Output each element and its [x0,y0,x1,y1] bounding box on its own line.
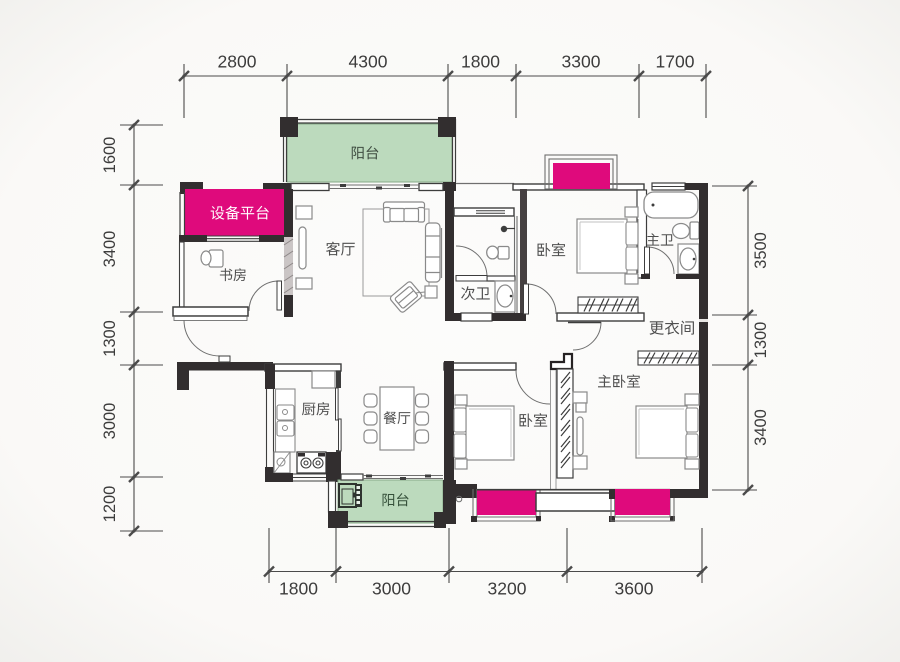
svg-text:2800: 2800 [218,52,257,72]
svg-text:3300: 3300 [562,52,601,72]
svg-text:4300: 4300 [349,52,388,72]
svg-text:3400: 3400 [752,409,770,446]
svg-text:3500: 3500 [752,232,770,269]
svg-text:1300: 1300 [101,320,119,357]
svg-text:3000: 3000 [372,579,411,599]
svg-text:1800: 1800 [461,52,500,72]
svg-text:3400: 3400 [101,231,119,268]
svg-text:3200: 3200 [488,579,527,599]
svg-text:1200: 1200 [101,486,119,523]
svg-text:3600: 3600 [615,579,654,599]
svg-text:1700: 1700 [656,52,695,72]
svg-text:3000: 3000 [101,403,119,440]
svg-text:1600: 1600 [101,137,119,174]
svg-text:1300: 1300 [752,322,770,359]
svg-text:1800: 1800 [279,579,318,599]
